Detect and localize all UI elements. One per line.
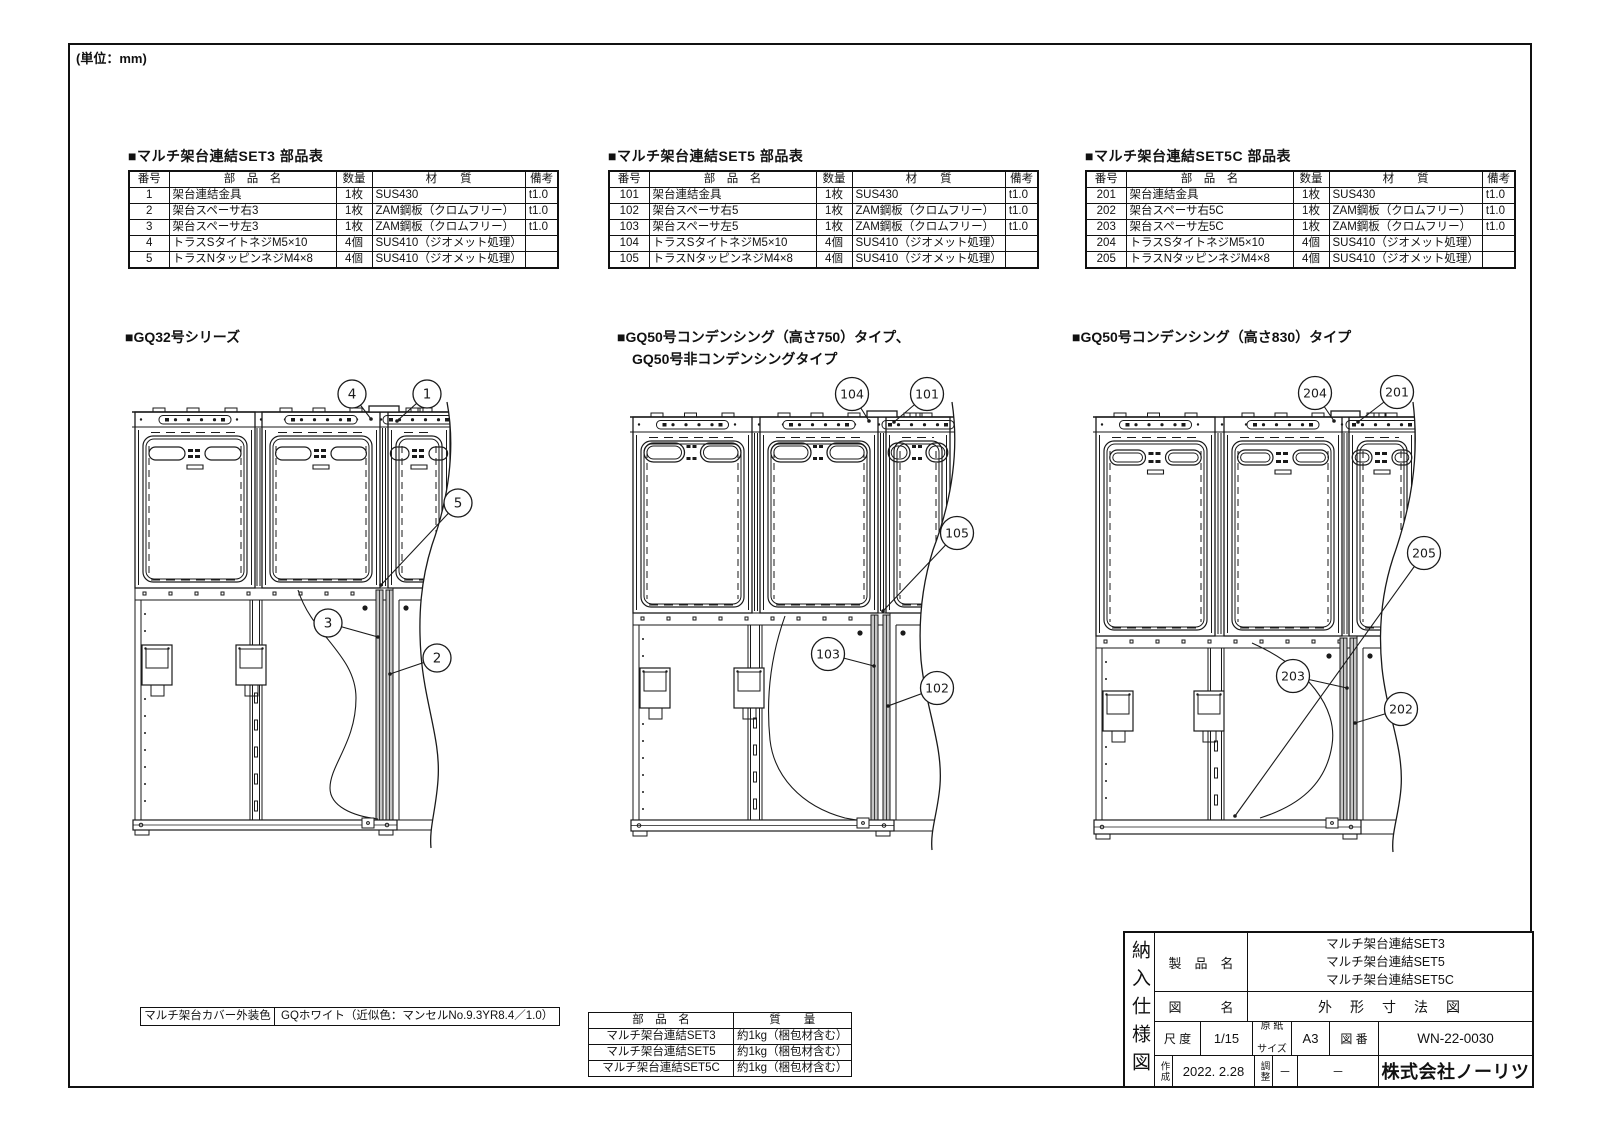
balloon-label: 201 <box>1385 385 1409 400</box>
color-note-label: マルチ架台カバー外装色 <box>141 1008 275 1025</box>
drawing-sheet: (単位：mm) ■マルチ架台連結SET3 部品表 番号部 品 名数量材 質備考1… <box>0 0 1600 1131</box>
title-block: 納入仕様図 製 品 名 マルチ架台連結SET3 マルチ架台連結SET5 マルチ架… <box>1123 931 1534 1088</box>
scale-value: 1/15 <box>1200 1021 1252 1055</box>
balloon-label: 204 <box>1303 386 1327 401</box>
mass-row: マルチ架台連結SET5約1kg（梱包材含む） <box>589 1045 852 1061</box>
product-name-label: 製 品 名 <box>1154 933 1247 991</box>
mass-row: マルチ架台連結SET5C約1kg（梱包材含む） <box>589 1061 852 1077</box>
paper-size-label: 原 紙 サイズ <box>1252 1021 1291 1055</box>
balloon-label: 104 <box>840 387 864 402</box>
balloon-label: 1 <box>423 387 432 403</box>
revision-dash: － <box>1297 1055 1378 1086</box>
drawing-1 <box>630 411 977 836</box>
balloon-label: 103 <box>816 647 840 662</box>
mass-row: マルチ架台連結SET3約1kg（梱包材含む） <box>589 1029 852 1045</box>
cover-color-note: マルチ架台カバー外装色 GQホワイト（近似色：マンセルNo.9.3YR8.4／1… <box>140 1007 560 1026</box>
column-header: 質 量 <box>734 1013 852 1029</box>
product-names: マルチ架台連結SET3 マルチ架台連結SET5 マルチ架台連結SET5C <box>1247 933 1532 991</box>
balloon-label: 3 <box>324 616 333 632</box>
created-date: 2022. 2.28 <box>1172 1055 1254 1086</box>
balloon-label: 5 <box>454 496 463 512</box>
balloon-label: 4 <box>348 387 357 403</box>
drawing-0 <box>132 406 472 835</box>
balloon-label: 105 <box>945 526 969 541</box>
balloon-label: 202 <box>1389 702 1413 717</box>
color-note-value: GQホワイト（近似色：マンセルNo.9.3YR8.4／1.0） <box>275 1008 559 1025</box>
balloon-label: 203 <box>1281 669 1305 684</box>
balloon-label: 205 <box>1412 546 1436 561</box>
drawing-name: 外 形 寸 法 図 <box>1247 991 1532 1021</box>
balloon-label: 2 <box>433 651 442 667</box>
drawing-2 <box>1093 411 1438 839</box>
adjust-label: 調整 <box>1254 1055 1272 1086</box>
drawing-number: WN-22-0030 <box>1378 1021 1532 1055</box>
adjust-value: － <box>1272 1055 1297 1086</box>
balloon-label: 101 <box>915 387 939 402</box>
scale-label: 尺 度 <box>1154 1021 1200 1055</box>
paper-size-value: A3 <box>1291 1021 1329 1055</box>
company-name: 株式会社ノーリツ <box>1378 1055 1532 1086</box>
doc-type-label: 納入仕様図 <box>1125 933 1154 1086</box>
drawing-number-label: 図 番 <box>1329 1021 1378 1055</box>
created-label: 作成 <box>1154 1055 1172 1086</box>
balloon-label: 102 <box>925 681 949 696</box>
mass-table: 部 品 名質 量マルチ架台連結SET3約1kg（梱包材含む）マルチ架台連結SET… <box>588 1012 852 1077</box>
drawing-name-label: 図 名 <box>1154 991 1247 1021</box>
column-header: 部 品 名 <box>589 1013 734 1029</box>
